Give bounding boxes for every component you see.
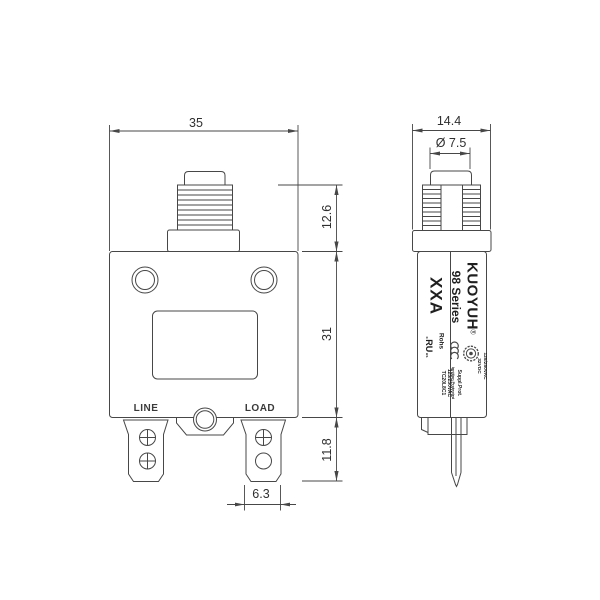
front-thread-ridges [178, 190, 233, 225]
dim-text-width: 35 [189, 117, 203, 130]
small-print-line-4: TC20L8C1 [439, 371, 445, 395]
ul-mark-ru: RU [425, 339, 433, 352]
registered-trademark-symbol: ® [469, 329, 476, 334]
front-body [110, 252, 299, 418]
ext-lines-35 [110, 125, 299, 251]
side-thread-ridges-left [423, 190, 442, 226]
line-terminal-label: LINE [134, 404, 159, 414]
small-print-line-1: Suppl.Prot. [455, 370, 461, 397]
load-terminal-hole [256, 453, 272, 469]
load-terminal-label: LOAD [245, 404, 275, 414]
ul-mark-us: us [425, 353, 429, 358]
dimension-lines [110, 124, 491, 511]
dim-text-depth: 14.4 [437, 115, 461, 128]
dim-text-body-height: 31 [321, 327, 334, 341]
voltage-line-1: 125/250VAC [481, 352, 487, 379]
front-view [110, 172, 299, 482]
rohs-text: Rohs [437, 333, 444, 349]
technical-drawing-canvas: 35 12.6 31 11.8 6.3 14.4 Ø 7.5 LINE LOAD… [0, 0, 600, 600]
brand-text: KUOYUH [465, 262, 480, 330]
dim-text-terminal-height: 11.8 [321, 438, 334, 461]
side-thread-ridges-right [463, 190, 481, 226]
side-collar [413, 231, 492, 252]
voltage-line-2: 32VDC [475, 358, 481, 373]
front-button-cap [185, 172, 226, 186]
series-text: 98 Series [450, 271, 462, 324]
ext-lines-75 [430, 148, 470, 170]
dim-text-button-height: 12.6 [321, 205, 334, 229]
drawing-linework [0, 0, 600, 600]
side-bottom-tab [422, 418, 429, 433]
ul-mark-icon: cRUus [425, 337, 433, 358]
amp-rating-text: XXA [428, 277, 445, 315]
voltage-rating-block: 125/250VAC 32VDC [475, 352, 487, 379]
front-label-window [153, 311, 258, 379]
front-thread-section [178, 185, 233, 230]
dim-text-terminal-width: 6.3 [252, 488, 269, 501]
side-terminal-pin [452, 418, 462, 477]
dim-text-button-diameter: Ø 7.5 [436, 137, 467, 150]
small-print-block: Suppl.Prot. Ignition Protected 125/250VA… [439, 367, 461, 399]
ccc-mark-icon [451, 342, 459, 359]
front-collar [168, 230, 240, 252]
side-button-cap [431, 171, 472, 185]
